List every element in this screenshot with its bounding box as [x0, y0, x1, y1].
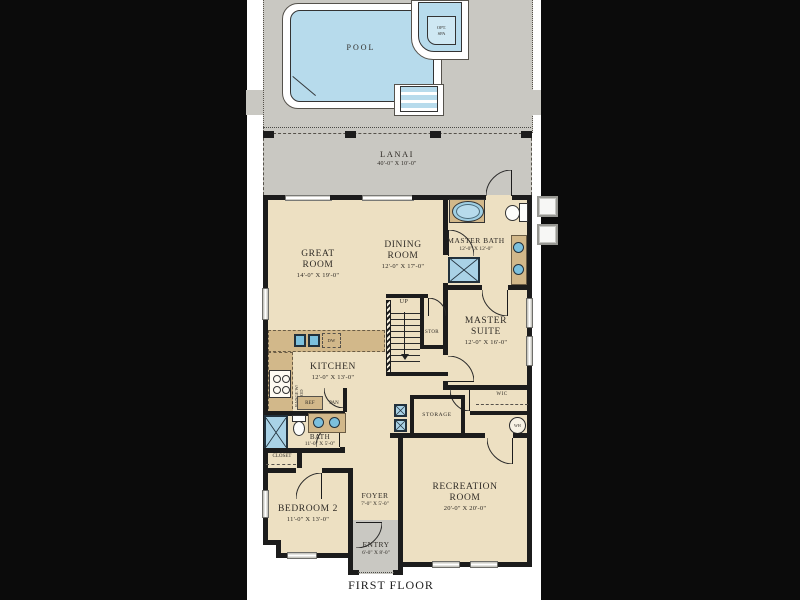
- wic-rod: [476, 404, 528, 405]
- plan-title: FIRST FLOOR: [331, 579, 451, 593]
- bedroom2-dims: 11'-0" X 13'-0": [266, 516, 350, 523]
- wall-rec-top: [513, 433, 532, 438]
- stacked-unit: [394, 419, 407, 432]
- entry-threshold: [358, 572, 394, 573]
- burner: [273, 386, 281, 394]
- closet-label: CLOSET: [265, 454, 299, 460]
- master-suite-hall-door: [448, 356, 474, 382]
- lanai-door: [486, 170, 512, 196]
- storage-label: STORAGE: [412, 412, 462, 418]
- rec-room-window: [470, 561, 498, 568]
- lanai-label: LANAI 40'-0" X 10'-0": [337, 150, 457, 168]
- wall-rec-top: [390, 433, 485, 438]
- wall-storage-top: [410, 395, 465, 399]
- bath-sink: [313, 417, 324, 428]
- stor-door: [428, 298, 446, 316]
- burner: [282, 375, 290, 383]
- refrigerator: REF: [297, 396, 323, 410]
- entry-dims: 6'-0" X 8'-0": [352, 550, 400, 556]
- master-suite-label: MASTER SUITE 12'-0" X 16'-0": [447, 316, 525, 346]
- foyer-label: FOYER 7'-0" X 5'-0": [352, 492, 398, 507]
- deck-bump-left: [246, 90, 263, 115]
- burner: [273, 375, 281, 383]
- burner: [282, 386, 290, 394]
- wic-door: [450, 389, 470, 411]
- stairs-up-label: UP: [390, 299, 418, 306]
- spa-label: OPT. SPA: [434, 25, 450, 36]
- wall-stor-bottom: [420, 345, 448, 349]
- range: [269, 370, 291, 398]
- entry-label: ENTRY 6'-0" X 8'-0": [352, 541, 400, 556]
- kitchen-sink: [308, 334, 320, 347]
- great-room-name: GREAT ROOM: [294, 249, 342, 271]
- master-suite-name: MASTER SUITE: [460, 316, 512, 338]
- foyer-name: FOYER: [352, 492, 398, 501]
- bedroom2-label: BEDROOM 2 11'-0" X 13'-0": [266, 504, 350, 523]
- bath-name: BATH: [294, 433, 346, 441]
- master-suite-door: [482, 290, 508, 316]
- great-room-dims: 14'-0" X 19'-0": [280, 272, 356, 279]
- bedroom-window: [287, 552, 317, 559]
- closet-rod: [266, 464, 296, 465]
- master-toilet-tank: [519, 203, 528, 222]
- deck-bump-right: [531, 90, 541, 115]
- pool-steps: [400, 86, 438, 112]
- great-room-window: [262, 288, 269, 320]
- wall-entry-stub: [393, 570, 403, 575]
- master-tub-inner: [456, 204, 480, 219]
- kitchen-sink: [294, 334, 306, 347]
- wic-label: WIC: [482, 392, 522, 398]
- master-bath-name: MASTER BATH: [444, 237, 508, 246]
- great-room-label: GREAT ROOM 14'-0" X 19'-0": [280, 249, 356, 279]
- lanai-post: [345, 131, 356, 138]
- lanai-post: [430, 131, 441, 138]
- lanai-post: [263, 131, 274, 138]
- water-heater: WH: [509, 417, 526, 434]
- master-toilet-bowl: [505, 205, 520, 221]
- rec-room-dims: 20'-0" X 20'-0": [408, 505, 522, 512]
- rec-room-window: [432, 561, 460, 568]
- wh-label: WH: [514, 423, 521, 428]
- dining-room-name: DINING ROOM: [379, 240, 427, 262]
- master-sink: [513, 264, 524, 275]
- bath-dims: 11'-0" X 5'-0": [294, 441, 346, 447]
- dw-label: DW: [328, 338, 336, 343]
- rec-room-name: RECREATION ROOM: [423, 482, 507, 504]
- floor-plan: POOL OPT. SPA LANAI 40'-0" X 10'-0": [0, 0, 800, 600]
- master-suite-window: [526, 298, 533, 328]
- dining-room-label: DINING ROOM 12'-0" X 17'-0": [370, 240, 436, 270]
- wall-mbath-bottom: [448, 285, 482, 290]
- wall-bedroom-top: [263, 468, 296, 473]
- wall-stair-stor: [420, 298, 424, 348]
- master-shower: [448, 257, 480, 283]
- foyer-dims: 7'-0" X 5'-0": [352, 501, 398, 507]
- wall-mbath-bottom: [508, 285, 532, 290]
- ref-label: REF: [305, 401, 315, 406]
- bedroom-door: [296, 473, 322, 499]
- entry-name: ENTRY: [352, 541, 400, 550]
- lanai-name: LANAI: [337, 150, 457, 160]
- bath-sink: [329, 417, 340, 428]
- sliding-door: [362, 195, 414, 201]
- mask-bedroom-south: [263, 558, 348, 570]
- wall-top: [330, 195, 362, 200]
- pan-label: PAN: [324, 401, 344, 407]
- pool-label: POOL: [325, 43, 397, 52]
- equipment-pad: [537, 224, 558, 245]
- master-sink: [513, 242, 524, 253]
- rec-room-door: [487, 438, 513, 464]
- stairs-arrow-line: [404, 312, 405, 354]
- spa-inner-box: OPT. SPA: [427, 16, 456, 45]
- bath-shower: [264, 415, 288, 450]
- bath-label: BATH 11'-0" X 5'-0": [294, 433, 346, 447]
- master-bath-label: MASTER BATH 12'-0" X 12'-0": [444, 237, 508, 252]
- lanai-post: [521, 131, 532, 138]
- stacked-unit: [394, 404, 407, 417]
- dining-room-dims: 12'-0" X 17'-0": [370, 263, 436, 270]
- equipment-pad: [537, 196, 558, 217]
- wall-wic-bottom: [470, 411, 532, 415]
- dishwasher: DW: [322, 333, 341, 348]
- rec-room-label: RECREATION ROOM 20'-0" X 20'-0": [408, 482, 522, 512]
- stor-label: STOR: [422, 330, 442, 336]
- master-suite-window: [526, 336, 533, 366]
- kitchen-label: KITCHEN 12'-0" X 13'-0": [302, 362, 364, 381]
- master-bath-dims: 12'-0" X 12'-0": [444, 246, 508, 252]
- lanai-dims: 40'-0" X 10'-0": [337, 161, 457, 168]
- wall-bottom-rec: [398, 562, 532, 567]
- wall-bath-bottom: [263, 448, 345, 453]
- master-suite-dims: 12'-0" X 16'-0": [447, 339, 525, 346]
- stairs-arrow-head: [401, 354, 409, 360]
- sliding-door: [285, 195, 332, 201]
- kitchen-name: KITCHEN: [302, 362, 364, 373]
- wall-right: [527, 195, 532, 567]
- wall-stair-bottom: [386, 372, 448, 376]
- deck-lanai-divider: [263, 127, 531, 128]
- kitchen-dims: 12'-0" X 13'-0": [302, 374, 364, 381]
- bedroom2-name: BEDROOM 2: [266, 504, 350, 515]
